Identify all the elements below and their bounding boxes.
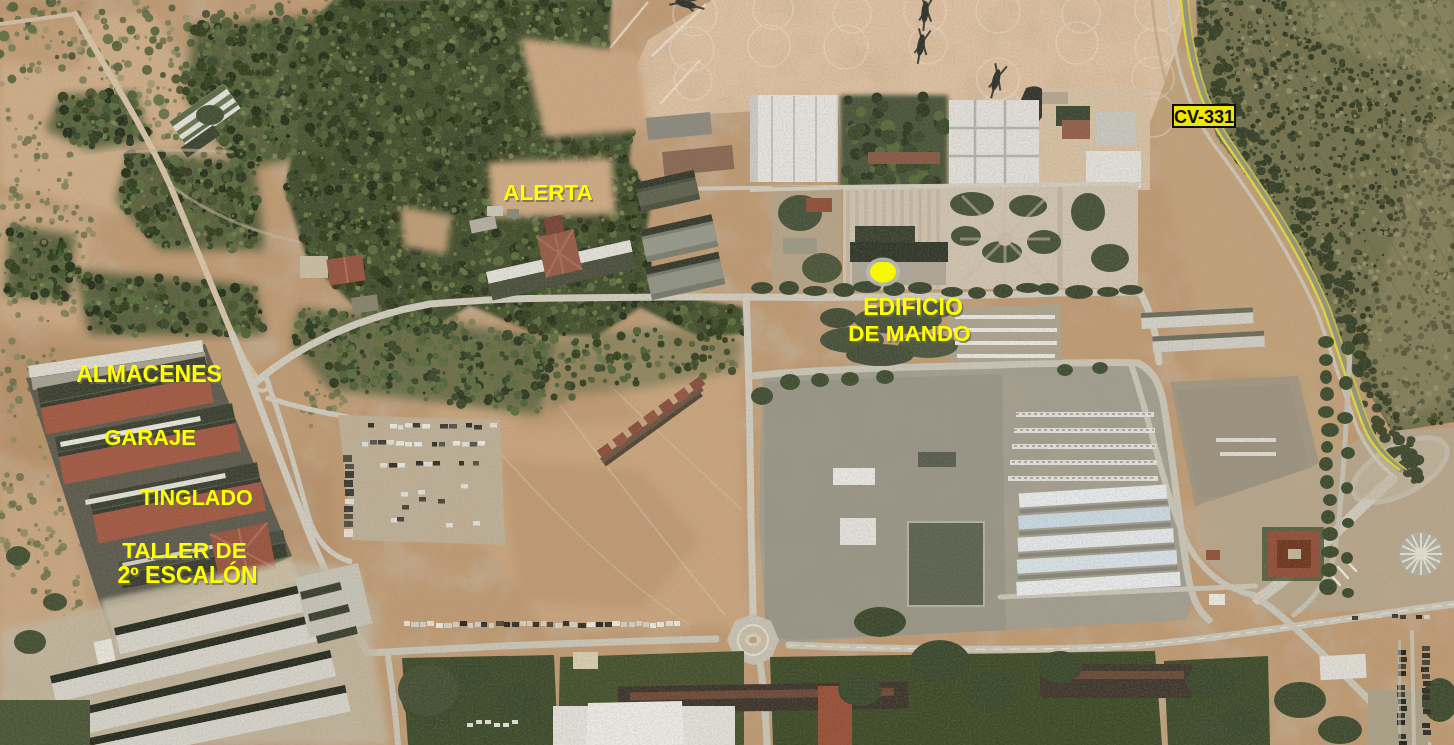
svg-text:GARAJE: GARAJE	[104, 425, 196, 450]
svg-text:TALLER DE: TALLER DE	[122, 538, 247, 563]
svg-text:TINGLADO: TINGLADO	[140, 486, 252, 510]
svg-text:CV-331: CV-331	[1174, 107, 1234, 127]
svg-text:DE MANDO: DE MANDO	[848, 321, 971, 346]
svg-text:2º ESCALÓN: 2º ESCALÓN	[117, 561, 257, 588]
svg-text:EDIFICIO: EDIFICIO	[863, 294, 963, 320]
svg-text:ALERTA: ALERTA	[503, 180, 593, 205]
svg-text:ALMACENES: ALMACENES	[76, 361, 222, 387]
